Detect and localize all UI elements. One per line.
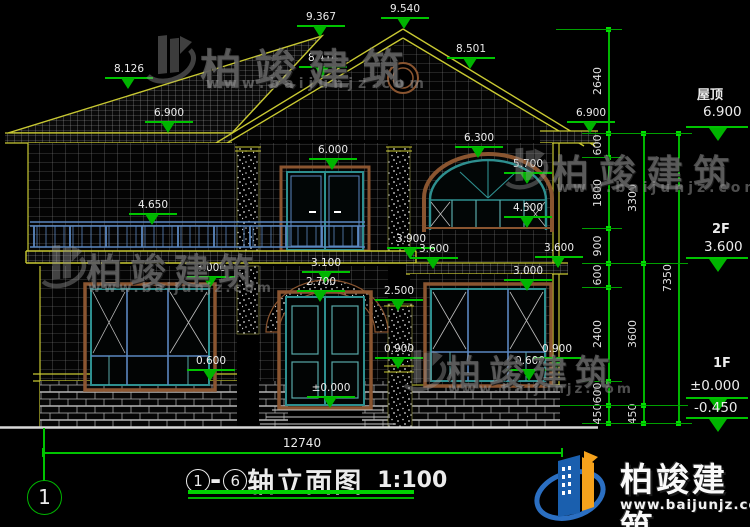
dim-chain-value: 900 — [591, 235, 604, 256]
floor-triangle-roof — [709, 128, 727, 141]
level-value: 2.500 — [371, 285, 427, 297]
dim-chain-value: 2640 — [591, 67, 604, 95]
level-value: 3.600 — [406, 243, 462, 255]
level-value: 6.000 — [305, 144, 361, 156]
title-axis-from: 1 — [186, 469, 210, 493]
floor-elev-roof: 6.900 — [703, 104, 742, 120]
floor-elev-2f: 3.600 — [704, 239, 743, 255]
left-eave-band — [5, 133, 232, 143]
dim-chain-value: 600 — [591, 265, 604, 286]
watermark-logo-icon — [398, 343, 448, 401]
floor-label-2f: 2F — [712, 222, 730, 237]
level-value: 6.300 — [451, 132, 507, 144]
dim-chain-value: 3600 — [626, 320, 639, 348]
level-value: 9.367 — [293, 11, 349, 23]
total-width-dim-line — [42, 452, 562, 454]
title-underline-thin — [188, 497, 414, 499]
level-value: 9.540 — [377, 3, 433, 15]
brick-center-b — [362, 381, 388, 428]
floor-triangle-2f — [709, 259, 727, 272]
level-value: 3.100 — [298, 257, 354, 269]
level-value: 6.900 — [563, 107, 619, 119]
watermark-url: www.baijunjz.com — [448, 381, 634, 397]
dim-tick-line — [582, 228, 622, 229]
floor-label-roof: 屋顶 — [697, 84, 723, 103]
total-width-dim: 12740 — [262, 436, 342, 450]
brick-left — [40, 381, 237, 428]
dim-connector — [556, 29, 618, 30]
dim-tick-line — [582, 287, 622, 288]
title-name: 轴立面图 — [247, 468, 363, 499]
floor-triangle-minus — [709, 419, 727, 432]
axis-bubble: 1 — [27, 480, 62, 515]
level-value: 3.000 — [500, 265, 556, 277]
title-axis-to: 6 — [223, 469, 247, 493]
dim-connector — [583, 133, 688, 134]
dim-end-tick — [42, 448, 44, 457]
level-value: 8.501 — [443, 43, 499, 55]
level-value: 2.700 — [293, 276, 349, 288]
floor-elev-1f: ±0.000 — [690, 378, 740, 394]
watermark-logo-icon — [140, 30, 198, 92]
dim-connector — [560, 405, 688, 406]
watermark-logo-icon — [36, 240, 88, 296]
dim-chain-value: 7350 — [661, 264, 674, 292]
title-underline-thick — [188, 490, 414, 494]
watermark-url: www.baijunjz.com — [88, 280, 274, 296]
dim-connector — [596, 263, 688, 264]
level-value: 4.650 — [125, 199, 181, 211]
dim-chain-value: 450 — [626, 404, 639, 425]
drawing-title: 1-6轴立面图1:100 — [186, 461, 447, 500]
level-value: 4.500 — [500, 202, 556, 214]
level-value: 3.600 — [531, 242, 587, 254]
brand-logo-icon — [528, 449, 618, 525]
level-value: 0.600 — [183, 355, 239, 367]
watermark-url: www.baijunjz.com — [206, 76, 429, 92]
level-value: ±0.000 — [303, 382, 359, 394]
floor-label-1f: 1F — [713, 356, 731, 371]
dim-chain-value: 2400 — [591, 320, 604, 348]
floor-elev-minus: -0.450 — [694, 400, 738, 416]
dim-chain-value: 450 — [591, 404, 604, 425]
watermark-logo-icon — [500, 142, 550, 198]
cad-elevation-drawing: 8.1269.3679.5408.4148.5016.9006.9006.000… — [0, 0, 750, 527]
brick-center-a — [259, 381, 288, 428]
watermark-url: www.baijunjz.com — [556, 180, 750, 196]
level-value: 6.900 — [141, 107, 197, 119]
dim-connector — [600, 423, 688, 424]
brand-company-name: 柏竣建筑 — [620, 453, 750, 527]
brand-url: www.baijunjz.com — [620, 497, 750, 513]
